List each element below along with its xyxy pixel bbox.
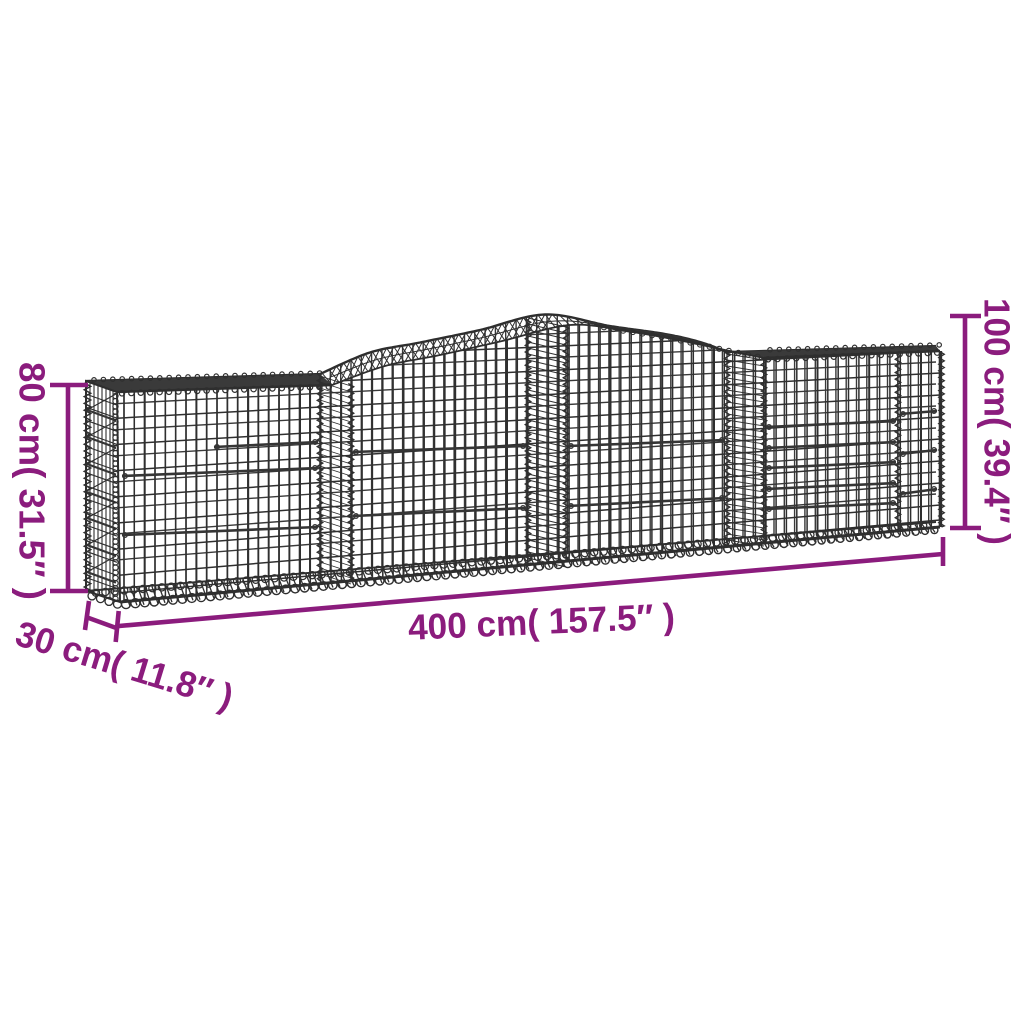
svg-text:80 cm( 31.5″ ): 80 cm( 31.5″ ) — [12, 362, 53, 600]
svg-text:100 cm( 39.4″ ): 100 cm( 39.4″ ) — [977, 298, 1018, 545]
